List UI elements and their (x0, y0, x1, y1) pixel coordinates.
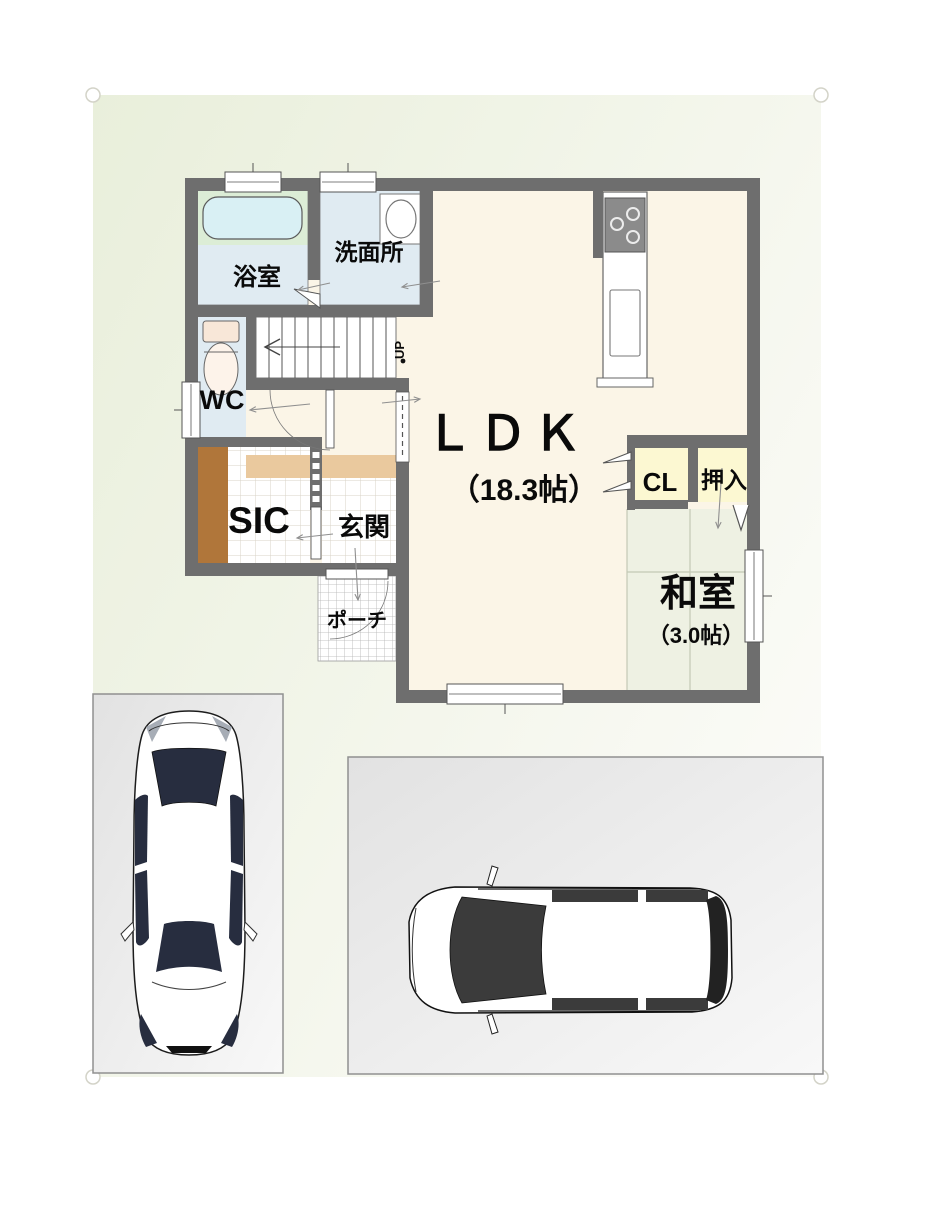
wc-label: WC (200, 385, 245, 415)
washitsu-size-label: （3.0帖） (648, 623, 745, 648)
windshield (450, 897, 546, 1003)
stairs-up-label: UP (392, 341, 407, 359)
bath-label: 浴室 (233, 263, 281, 291)
ldk-size-label: （18.3帖） (450, 473, 598, 507)
windshield (152, 748, 226, 806)
porch-label: ポーチ (327, 608, 387, 632)
cl-label: CL (643, 467, 678, 497)
bathtub-icon (203, 197, 302, 239)
minivan-car-icon (409, 866, 732, 1034)
parking-space-left (93, 694, 283, 1073)
washroom-label: 洗面所 (335, 239, 404, 265)
oshiire-label: 押入 (701, 467, 747, 493)
ldk-label: ＬＤＫ (425, 408, 587, 461)
staircase (256, 317, 405, 378)
kitchen-counter (597, 192, 653, 387)
washitsu-label: 和室 (660, 572, 736, 615)
sliding-door-ldk (396, 392, 409, 462)
toilet-icon (203, 321, 239, 395)
sic-label: SIC (228, 500, 290, 541)
wc-room (196, 317, 246, 437)
site-plan: 浴室 洗面所 WC SIC 玄関 ポーチ ＬＤＫ （18.3帖） CL 押入 和… (0, 0, 947, 1200)
rear-window (156, 921, 222, 972)
genkan-label: 玄関 (338, 512, 390, 542)
parking-space-right (348, 757, 823, 1074)
sedan-car-icon (121, 711, 257, 1055)
kitchen-sink-icon (610, 290, 640, 356)
shoe-shelf (196, 447, 228, 563)
